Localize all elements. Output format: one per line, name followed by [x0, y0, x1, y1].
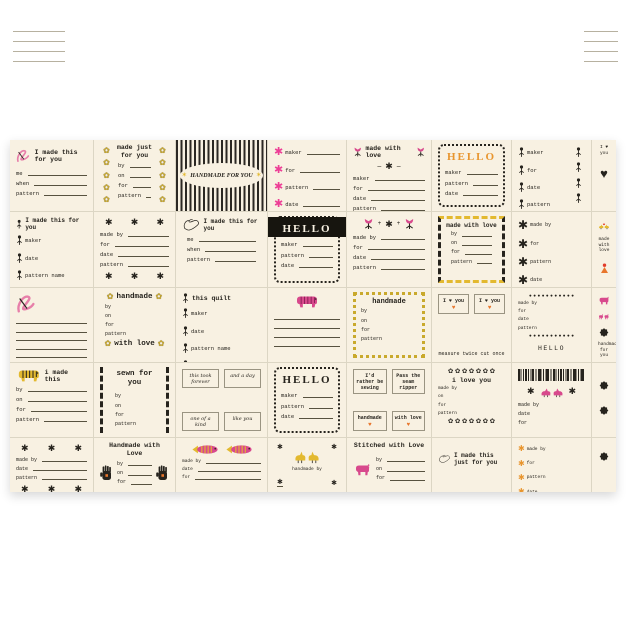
write-line — [44, 417, 87, 422]
write-line — [16, 350, 87, 358]
label-field: ✱for — [274, 165, 340, 176]
label-fields: ✱made by✱for✱pattern✱date — [518, 442, 585, 492]
write-line — [381, 235, 425, 240]
black-flower-icon: ✿ — [476, 419, 481, 426]
label-title: HELLO — [281, 374, 333, 388]
motif-row: ✱✱✱ — [16, 485, 87, 492]
hand-icon — [100, 465, 113, 482]
flower-stem-icon — [182, 308, 189, 319]
motif-row — [182, 444, 261, 455]
gold-flower-icon: ✿ — [159, 172, 166, 180]
asterisk-icon: ✱ — [569, 387, 577, 396]
label-field: date — [281, 413, 333, 420]
write-line — [465, 250, 492, 255]
asterisk-icon: ✱ — [385, 162, 393, 171]
write-line — [371, 255, 425, 260]
label-field: ✱date — [274, 199, 340, 210]
label-field: by — [16, 386, 87, 393]
write-line — [307, 150, 340, 155]
black-heart-icon: ♥ — [600, 167, 608, 180]
pink-asterisk-icon: ✱ — [274, 147, 283, 158]
label-field: date — [16, 466, 87, 472]
gold-star-icon: ✶ — [256, 172, 262, 179]
yellow-birds-heart-icon — [598, 218, 610, 234]
asterisk-icon: ✱ — [156, 218, 164, 227]
dot-icon: ● — [546, 334, 549, 339]
flower-stem-icon — [575, 178, 582, 189]
label-field: pattern — [445, 180, 498, 187]
label-fish-fields: made bydatefor — [176, 438, 268, 492]
product-photo-page: { "page":{"background":"#ffffff"}, "pane… — [0, 0, 626, 626]
yellow-tiger-icon — [16, 368, 42, 383]
dot-icon: ● — [559, 294, 562, 299]
flower-stem-icon — [182, 343, 189, 354]
label-made-with-love-tulips: made with love–✱–makerfordatepattern — [347, 140, 432, 212]
label-caption: I ♥ you — [598, 145, 610, 156]
label-fields: byonforpattern — [110, 392, 159, 429]
flower-stem-icon — [518, 147, 525, 158]
label-black-asterisk-fields: ✱made by✱for✱pattern✱date — [512, 212, 592, 288]
label-field: date — [100, 251, 169, 258]
write-line — [462, 232, 492, 237]
black-flower-icon: ✿ — [469, 419, 474, 426]
dot-border-row: ✿✿✿✿✿✿✿ — [438, 369, 505, 376]
dash-icon: – — [377, 163, 381, 170]
label-i-love-you-flower-rows: ✿✿✿✿✿✿✿i love youmade byonforpattern✿✿✿✿… — [432, 363, 512, 438]
write-line — [309, 253, 333, 258]
motif-fields-row: byonfor — [100, 458, 169, 488]
label-fields: makerfordatepattern — [353, 173, 425, 212]
black-flower-icon: ✿ — [448, 419, 453, 426]
label-title-row: i made this — [16, 368, 87, 383]
gold-star-icon: ✶ — [181, 172, 187, 179]
fragment-line — [13, 52, 65, 62]
write-line — [387, 457, 425, 462]
asterisk-icon: ✱ — [518, 219, 528, 231]
mini-tag: one of a kind — [182, 412, 219, 431]
label-field: pattern name — [16, 270, 87, 281]
asterisk-icon: ✱ — [74, 485, 82, 492]
yellow-birds-icon — [292, 449, 322, 464]
label-circles-hello-barcode: ●●●●●●●●●●●made byfordatepattern●●●●●●●●… — [512, 288, 592, 363]
label-fields: byonforpattern — [113, 160, 156, 201]
label-field: for — [105, 322, 164, 328]
label-fields: byonfor — [376, 455, 425, 483]
label-rickrack-made-with-love: made with lovebyonforpattern — [432, 212, 512, 288]
label-field: date — [518, 411, 585, 417]
label-field: ✱pattern — [274, 182, 340, 193]
write-line — [462, 241, 492, 246]
label-fields: makerdatepattern namedate — [16, 232, 87, 288]
write-line — [128, 471, 152, 476]
panel-fragment-top-right — [584, 22, 618, 62]
label-field: for — [115, 412, 154, 418]
label-field: for — [361, 327, 417, 333]
write-line — [387, 467, 425, 472]
label-field: made by — [518, 301, 585, 306]
label-field: by — [115, 393, 154, 399]
write-line — [128, 461, 152, 466]
fish-icon — [224, 444, 254, 455]
label-i-heart-you: I ♥ you♥ — [592, 140, 616, 212]
write-line — [198, 467, 261, 472]
mini-tag: like you — [224, 412, 261, 431]
label-fields: byonforpattern — [361, 307, 417, 344]
label-title: i love you — [438, 377, 505, 385]
write-line — [274, 320, 340, 329]
label-field: for — [353, 244, 425, 251]
write-line — [16, 316, 87, 324]
dot-icon: ● — [554, 294, 557, 299]
motif-row: ✱✱✱ — [100, 272, 169, 281]
panel-fragment-top-left — [13, 22, 65, 62]
orange-heart-icon: ♥ — [452, 305, 456, 311]
motif-row — [598, 450, 610, 463]
label-ribbon-blank-lines — [10, 288, 94, 363]
label-field: on — [105, 313, 164, 319]
label-yellow-tiger-i-made-this: i made thisbyonforpattern — [10, 363, 94, 438]
orange-heart-icon: ♥ — [488, 305, 492, 311]
write-line — [16, 341, 87, 349]
label-fields: made byfordatepattern — [100, 229, 169, 270]
write-line — [130, 173, 151, 178]
label-field: pattern — [105, 331, 164, 337]
dash-icon: – — [397, 163, 401, 170]
write-line — [303, 242, 333, 247]
motif-row — [598, 263, 610, 274]
side-motif-column — [573, 147, 584, 204]
write-line — [31, 407, 87, 412]
label-title-row: ✿with love✿ — [100, 340, 169, 348]
label-field: made by — [353, 234, 425, 241]
dot-icon: ● — [533, 294, 536, 299]
label-field: date — [353, 254, 425, 261]
label-field: for — [100, 241, 169, 248]
asterisk-icon: ✱ — [518, 256, 528, 268]
label-fields: byonforpattern — [446, 230, 497, 267]
label-title: HELLO — [445, 151, 498, 165]
gold-flower-icon: ✿ — [103, 159, 110, 167]
asterisk-icon: ✱ — [48, 444, 56, 453]
label-title: sewn for you — [110, 370, 159, 389]
label-field: ✱maker — [274, 147, 340, 158]
corner-asterisk-icon: ✱ — [331, 479, 337, 487]
label-title: Handmade with Love — [100, 442, 169, 458]
label-caption: handmade by — [274, 467, 340, 473]
write-line — [128, 262, 169, 267]
pink-asterisk-icon: ✱ — [274, 199, 283, 210]
label-fields: byonfor — [117, 459, 152, 487]
label-field: pattern — [353, 264, 425, 271]
label-field: pattern name — [182, 343, 261, 354]
write-line — [16, 324, 87, 332]
label-field: pattern — [361, 336, 417, 342]
dot-border-row: ●●●●●●●●●●● — [518, 294, 585, 299]
label-field: for — [118, 182, 151, 189]
label-dove-just-for-you: I made this just for you — [432, 438, 512, 492]
label-field: ✱for — [518, 238, 585, 250]
label-field: for — [438, 403, 505, 408]
dot-border-row: ✿✿✿✿✿✿✿ — [438, 419, 505, 426]
label-fields: made byonforpattern — [438, 385, 505, 418]
dot-icon: ● — [546, 294, 549, 299]
write-line — [368, 186, 425, 191]
label-field: pattern — [438, 411, 505, 416]
label-hello-dotted-black: HELLOmakerpatterndate — [268, 363, 347, 438]
write-line — [309, 404, 333, 409]
label-field: on — [115, 403, 154, 409]
motif-row: ✱✱✱ — [100, 218, 169, 227]
asterisk-icon: ✱ — [21, 444, 29, 453]
label-title-row: ✿handmade✿ — [100, 293, 169, 301]
black-flower-icon: ✿ — [462, 419, 467, 426]
label-fields: makerpatterndate — [281, 391, 333, 422]
side-motif-column: ✿✿✿✿✿ — [157, 147, 168, 204]
write-line — [199, 237, 256, 242]
write-line — [33, 466, 87, 471]
mini-tag: handmade♥ — [353, 411, 387, 431]
label-field: for — [518, 420, 585, 426]
label-title: Stitched with Love — [353, 442, 425, 450]
black-flower-icon: ✿ — [455, 369, 460, 376]
label-field: for — [16, 406, 87, 413]
label-field: ✱date — [518, 274, 585, 286]
label-field: pattern — [16, 416, 87, 423]
fragment-line — [584, 32, 618, 42]
label-field: pattern — [518, 326, 585, 331]
label-flower-stem-fields: makerfordatepattern — [512, 140, 592, 212]
motif-row: ✱✱ — [518, 385, 585, 398]
write-line — [375, 176, 425, 181]
write-line — [303, 393, 333, 398]
label-tulip-star-fields: +✱+made byfordatepattern — [347, 212, 432, 288]
mini-tags: I ♥ you♥I ♥ you♥ — [438, 294, 505, 348]
asterisk-icon: ✱ — [518, 238, 528, 250]
label-field: when — [187, 246, 256, 253]
flower-stem-icon — [575, 162, 582, 173]
label-fields: ✱made by✱for✱pattern✱date — [518, 216, 585, 288]
write-line — [44, 191, 87, 196]
dot-icon: ● — [571, 294, 574, 299]
motif-row — [598, 218, 610, 234]
write-line — [133, 183, 151, 188]
label-title-row: I made this just for you — [438, 451, 505, 467]
black-flower-icon: ✿ — [476, 369, 481, 376]
label-field: maker — [16, 235, 87, 246]
label-field: for — [353, 185, 425, 192]
label-field: on — [438, 394, 505, 399]
fragment-line — [584, 22, 618, 32]
flower-stem-icon — [518, 199, 525, 210]
label-title-row: made with love — [353, 145, 425, 159]
tulip-icon — [353, 146, 362, 158]
write-line — [28, 387, 87, 392]
label-field: pattern — [16, 475, 87, 481]
label-pink-animals-star: handmade for you — [592, 288, 616, 363]
label-pink-tiger-lines — [268, 288, 347, 363]
motif-row — [598, 379, 610, 392]
dove-icon — [182, 217, 200, 233]
label-this-quilt-stems: this quiltmakerdatepattern namedate — [176, 288, 268, 363]
label-birds-stars-barcode: ✱✱made bydatefor — [512, 363, 592, 438]
label-title: handmade — [361, 298, 417, 307]
label-grid: I made this for youmewhenpattern✿✿✿✿✿✿✿✿… — [10, 140, 616, 492]
orange-asterisk-icon: ✱ — [518, 445, 525, 453]
dot-icon: ● — [563, 334, 566, 339]
write-line — [274, 311, 340, 320]
dot-icon: ● — [542, 334, 545, 339]
write-line — [467, 170, 498, 175]
write-line — [146, 193, 151, 198]
label-fields: mewhenpattern — [182, 234, 261, 265]
write-line — [299, 414, 333, 419]
pink-rabbits-icon — [598, 311, 610, 322]
gold-flower-icon: ✿ — [159, 159, 166, 167]
black-flower-icon: ✿ — [462, 369, 467, 376]
pink-birds-icon — [539, 385, 565, 398]
label-handmade-with-love-hands: Handmade with Lovebyonfor — [94, 438, 176, 492]
write-line — [130, 163, 151, 168]
label-field: date — [518, 317, 585, 322]
label-field: maker — [281, 392, 333, 399]
write-line — [115, 242, 169, 247]
asterisk-icon: ✱ — [74, 444, 82, 453]
write-line — [463, 191, 498, 196]
asterisk-icon: ✱ — [105, 272, 113, 281]
label-caption: made with love — [598, 237, 610, 254]
asterisk-icon: ✱ — [131, 272, 139, 281]
label-field: date — [353, 195, 425, 202]
mini-tags: this took foreverand a dayone of a kindl… — [182, 369, 261, 431]
motif-row — [598, 326, 610, 339]
orange-heart-icon: ♥ — [368, 422, 372, 428]
write-line — [313, 185, 340, 190]
label-field: pattern — [115, 421, 154, 427]
label-field: pattern — [281, 403, 333, 410]
plus-icon: + — [378, 221, 382, 227]
label-fields: made byfordatepattern — [518, 300, 585, 333]
label-handmade-flower-frame: handmadebyonforpattern — [347, 288, 432, 363]
flower-stem-icon — [518, 165, 525, 176]
label-field: on — [118, 172, 151, 179]
write-line — [381, 265, 425, 270]
label-title-row — [16, 293, 87, 315]
tulip-icon — [404, 218, 415, 230]
label-field: by — [361, 308, 417, 314]
label-field: pattern — [281, 252, 333, 259]
black-flower-icon: ✿ — [455, 419, 460, 426]
asterisk-icon: ✱ — [131, 218, 139, 227]
mini-tag: I ♥ you♥ — [474, 294, 505, 314]
label-field: by — [376, 457, 425, 463]
label-quote-tags-sewing: I'd rather be sewingPass the seam ripper… — [347, 363, 432, 438]
orange-asterisk-icon: ✱ — [518, 488, 525, 492]
write-line — [16, 333, 87, 341]
label-field: by — [105, 304, 164, 310]
label-fields: makerpatterndate — [445, 168, 498, 199]
gold-flower-icon: ✿ — [158, 340, 165, 348]
label-field: on — [16, 396, 87, 403]
label-title-row: I made this for you — [182, 217, 261, 233]
fragment-line — [584, 52, 618, 62]
label-single-star — [592, 438, 616, 492]
motif-row: –✱– — [353, 162, 425, 171]
label-fields: made bydatepattern — [16, 455, 87, 483]
label-i-made-this-stems: I made this for youmakerdatepattern name… — [10, 212, 94, 288]
tulip-icon — [363, 218, 374, 230]
gold-flower-icon: ✿ — [103, 147, 110, 155]
gold-flower-icon: ✿ — [159, 196, 166, 204]
dot-icon: ● — [563, 294, 566, 299]
label-field: ✱pattern — [518, 474, 585, 482]
pink-ribbon-icon — [16, 293, 38, 315]
pink-pig-icon — [598, 294, 610, 307]
flower-stem-icon — [16, 270, 23, 281]
fragment-line — [13, 32, 65, 42]
label-fields: makerdatepattern namedate — [182, 305, 261, 363]
label-field: date — [182, 326, 261, 337]
small-orange-figure-icon — [600, 263, 609, 274]
tulip-icon — [416, 146, 425, 158]
side-motif-column: ✿✿✿✿✿ — [101, 147, 112, 204]
black-flower-icon: ✿ — [490, 419, 495, 426]
label-fields: byonforpattern — [16, 384, 87, 425]
label-field: pattern — [100, 261, 169, 268]
label-field: pattern — [16, 190, 87, 197]
flower-stem-icon — [182, 326, 189, 337]
motif-fields-row: byonfor — [353, 450, 425, 488]
label-field: maker — [445, 169, 498, 176]
dot-icon: ● — [537, 334, 540, 339]
pink-pig-icon — [353, 463, 372, 476]
label-field: on — [117, 470, 152, 476]
write-line — [28, 171, 87, 176]
mini-tag: and a day — [224, 369, 261, 388]
label-field: by — [451, 231, 492, 237]
label-asterisk-frame-2: ✱✱✱made bydatepattern✱✱✱ — [10, 438, 94, 492]
label-field: pattern — [451, 259, 492, 265]
motif-row: ✱✱✱ — [16, 444, 87, 453]
gold-flower-icon: ✿ — [107, 293, 114, 301]
motif-row — [598, 294, 610, 307]
plus-icon: + — [397, 221, 401, 227]
label-stitched-with-love: Stitched with Lovebyonfor — [347, 438, 432, 492]
mini-tag: with love♥ — [392, 411, 426, 431]
label-title-row: I made this for you — [16, 217, 87, 231]
dot-icon: ● — [550, 294, 553, 299]
fragment-line — [13, 42, 65, 52]
label-field: for — [117, 479, 152, 485]
mini-tag: I ♥ you♥ — [438, 294, 469, 314]
flower-stem-icon — [575, 147, 582, 158]
gold-flower-icon: ✿ — [103, 172, 110, 180]
label-field: made by — [518, 402, 585, 408]
label-fields: ✱maker✱for✱pattern✱date — [274, 144, 340, 212]
label-field: by — [118, 162, 151, 169]
label-yellow-birds-handmade-by: ✱✱✱✱handmade by — [268, 438, 347, 492]
label-fields: made bydatefor — [518, 400, 585, 428]
orange-asterisk-icon: ✱ — [518, 460, 525, 468]
label-field: made by — [100, 231, 169, 238]
black-flower-icon: ✿ — [448, 369, 453, 376]
write-line — [390, 476, 425, 481]
pink-tiger-icon — [294, 294, 320, 309]
eight-point-star-icon — [598, 326, 610, 339]
eight-point-star-icon — [598, 450, 610, 463]
eight-point-star-icon — [598, 404, 610, 417]
pink-ribbon-icon — [16, 145, 32, 167]
write-line — [477, 259, 492, 264]
